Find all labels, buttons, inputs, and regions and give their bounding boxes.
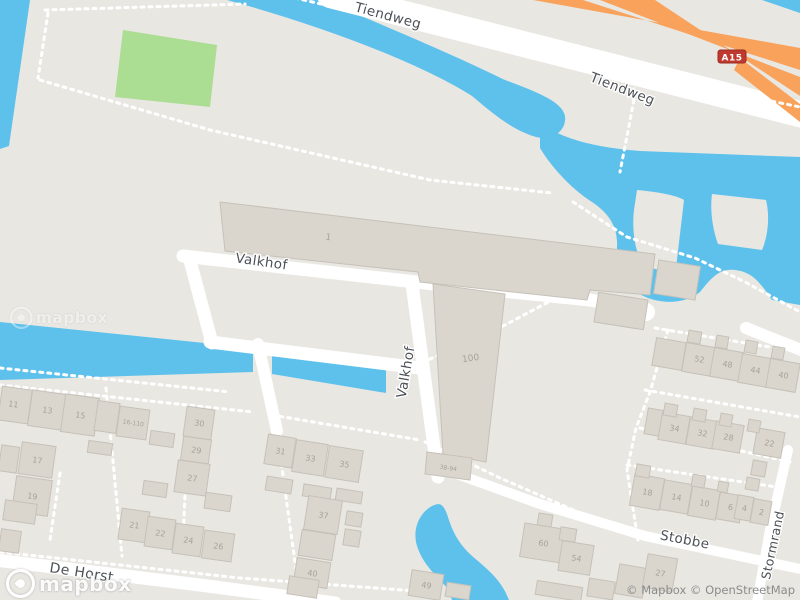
house-number-label: 10 (699, 498, 711, 509)
house-number-label: 52 (694, 354, 706, 365)
house-number-label: 33 (305, 453, 316, 463)
house-number-label: 17 (32, 455, 43, 465)
house-number-label: 28 (723, 432, 735, 443)
mapbox-logo[interactable]: mapbox (6, 569, 132, 598)
house-number-label: 21 (129, 520, 140, 530)
house-number-label: 40 (778, 370, 790, 381)
house-number-label: 22 (764, 438, 776, 449)
motorway-shield-text: A15 (722, 54, 743, 64)
house-number-label: 35 (339, 459, 350, 469)
house-number-label: 27 (187, 473, 198, 483)
house-number-label: 32 (697, 428, 709, 439)
map-tiles: 110038-9411131516-1103029271719212224263… (0, 0, 800, 600)
attribution-link[interactable]: © Mapbox © OpenStreetMap (626, 583, 795, 597)
house-number-label: 40 (307, 568, 318, 578)
house-number-label: 27 (655, 568, 667, 579)
house-number-label: 48 (722, 359, 734, 370)
house-number-label: 44 (750, 365, 762, 376)
house-number-label: 49 (421, 580, 432, 590)
house-number-label: 22 (155, 528, 166, 538)
house-number-label: 19 (27, 491, 38, 501)
motorway-shield-a15: A15 (718, 50, 746, 64)
house-number-label: 24 (183, 535, 194, 545)
mapbox-logo-text: mapbox (39, 572, 132, 596)
house-number-label: 14 (671, 492, 683, 503)
house-number-label: 37 (318, 510, 329, 520)
house-number-label: 26 (213, 541, 224, 551)
house-number-label: 31 (275, 446, 286, 456)
map-canvas[interactable]: 110038-9411131516-1103029271719212224263… (0, 0, 800, 600)
house-number-label: 11 (8, 399, 19, 409)
house-number-label: 34 (669, 423, 681, 434)
house-number-label: 13 (42, 405, 53, 415)
house-number-label: 15 (75, 410, 86, 420)
house-number-label: 29 (191, 445, 202, 455)
park-sports-field (115, 30, 217, 107)
house-number-label: 18 (642, 487, 654, 498)
mapbox-logo-icon (6, 569, 35, 598)
house-number-label: 54 (571, 553, 582, 563)
house-number-label: 60 (538, 538, 549, 548)
house-number-label: 30 (194, 418, 205, 428)
